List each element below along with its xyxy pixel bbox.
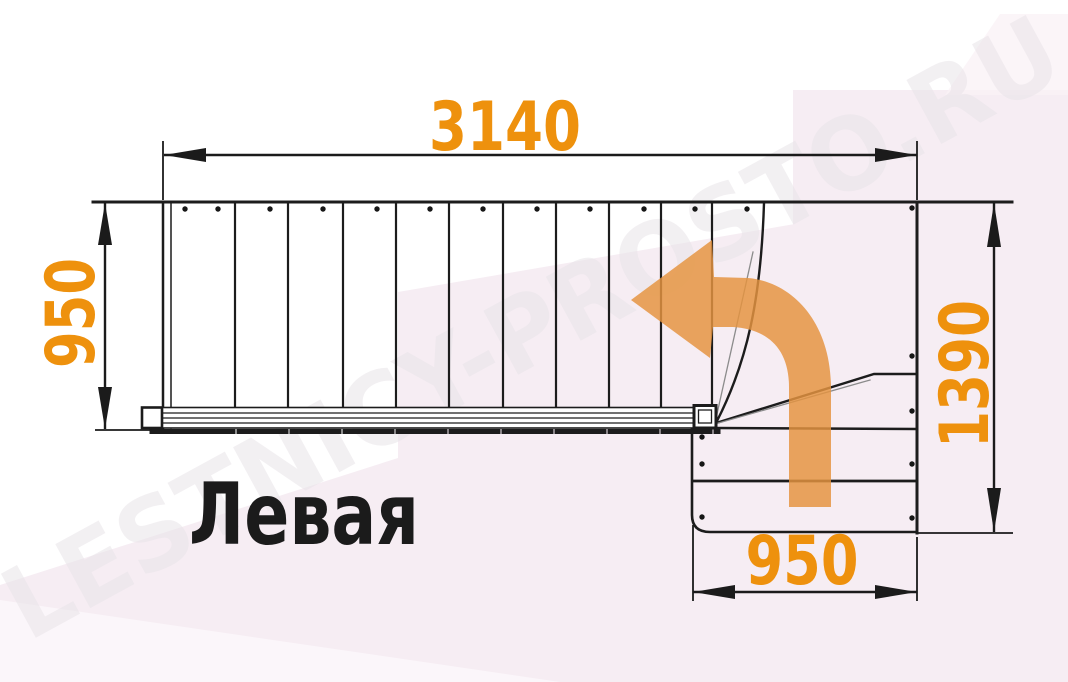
dim-value-bottom-width: 950 <box>746 522 859 601</box>
newel-post-turn-inner <box>699 410 712 423</box>
dim-value-left-depth: 950 <box>32 258 111 368</box>
newel-post-left <box>142 408 162 429</box>
stair-plan-drawing: LESTNICY-PROSTO.RU <box>0 0 1068 682</box>
plan-label: Левая <box>189 465 419 565</box>
dim-value-top-width: 3140 <box>429 88 581 167</box>
dim-value-right-depth: 1390 <box>926 300 1005 448</box>
